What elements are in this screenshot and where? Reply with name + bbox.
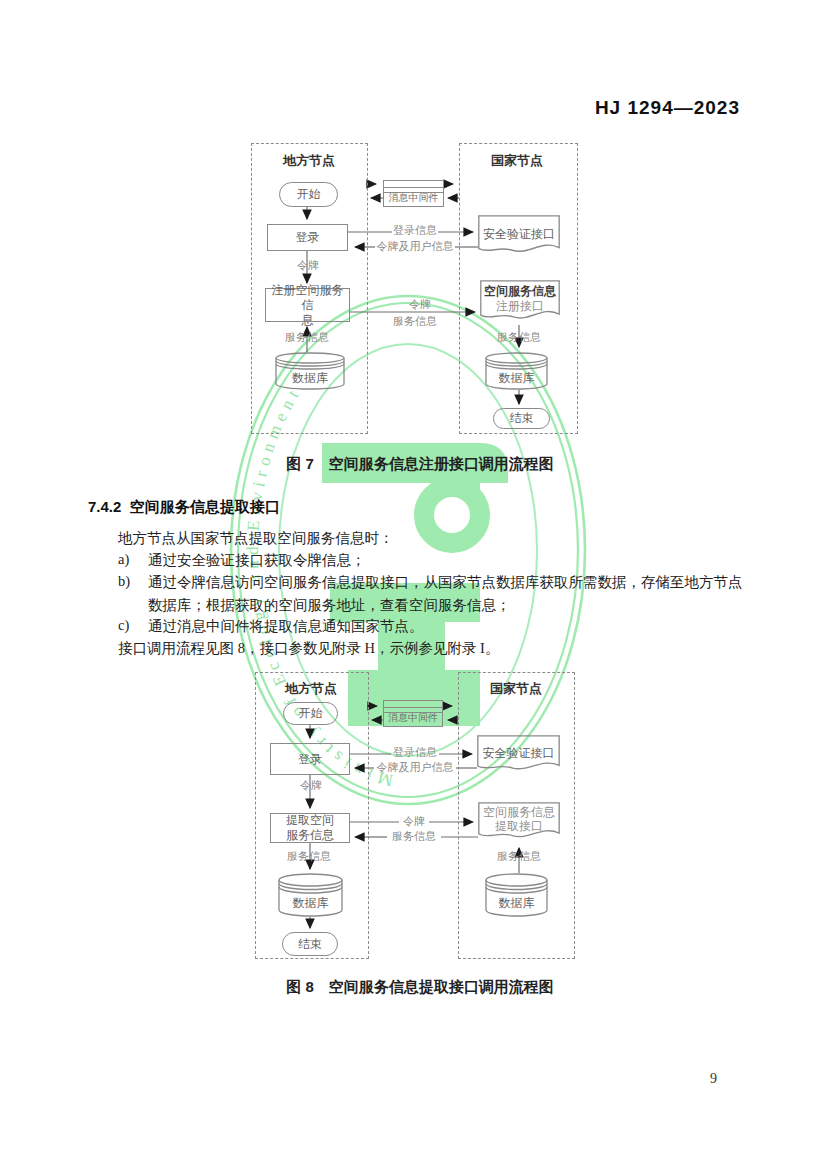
figure7-register-box: 注册空间服务信 息 (265, 288, 350, 322)
standard-number: HJ 1294—2023 (595, 97, 740, 119)
figure7-label-token-user: 令牌及用户信息 (377, 239, 454, 254)
figure7-middleware-node: 消息中间件 (383, 180, 444, 207)
list-marker: a) (118, 551, 129, 568)
figure8-national-node-title: 国家节点 (473, 680, 559, 698)
figure7-middleware-label: 消息中间件 (384, 191, 443, 205)
figure7-database-left: 数据库 (275, 352, 345, 390)
middleware-strip (384, 187, 443, 188)
section-title: 空间服务信息提取接口 (130, 498, 280, 515)
list-item-a: a) 通过安全验证接口获取令牌信息； (118, 551, 366, 570)
figure7-label-service-info-mid: 服务信息 (393, 314, 437, 329)
section-heading: 7.4.2 空间服务信息提取接口 (88, 498, 280, 517)
figure8-label-token-user: 令牌及用户信息 (377, 760, 454, 775)
figure8-extract-interface-line2: 提取接口 (478, 818, 560, 835)
figure8-login-node: 登录 (270, 743, 350, 775)
list-text-line1: 通过令牌信息访问空间服务信息提取接口，从国家节点数据库获取所需数据，存储至地方节… (148, 573, 743, 592)
figure8-label-token-mid: 令牌 (403, 814, 425, 829)
figure8-label-service-info-mid: 服务信息 (392, 829, 436, 844)
figure7-local-node-title: 地方节点 (266, 152, 352, 170)
figure8-local-node-title: 地方节点 (268, 680, 354, 698)
list-marker: c) (118, 617, 129, 634)
figure8-flowchart: 地方节点 国家节点 开始 消息中间件 登录 安全验证接口 提取空间 服务信息 (255, 672, 577, 962)
page-number: 9 (710, 1071, 717, 1087)
list-text-line2: 数据库；根据获取的空间服务地址，查看空间服务信息； (148, 596, 743, 615)
section-intro: 地方节点从国家节点提取空间服务信息时： (118, 529, 394, 548)
figure7-label-service-info-left: 服务信息 (285, 330, 329, 345)
figure7-national-node-title: 国家节点 (474, 152, 560, 170)
section-outro: 接口调用流程见图 8，接口参数见附录 H，示例参见附录 I。 (118, 639, 499, 658)
figure7-auth-interface-label: 安全验证接口 (478, 226, 560, 243)
document-page: Ministry of Ecology and Environment HJ 1… (0, 0, 826, 1169)
figure7-database-right: 数据库 (485, 352, 548, 390)
list-text: 通过消息中间件将提取信息通知国家节点。 (148, 617, 424, 636)
figure8-middleware-label: 消息中间件 (384, 711, 442, 725)
figure8-label-token-down: 令牌 (300, 778, 322, 793)
figure8-end-node: 结束 (282, 932, 338, 956)
figure8-middleware-node: 消息中间件 (383, 700, 443, 727)
figure8-auth-interface-node: 安全验证接口 (477, 735, 560, 775)
figure8-database-right-label: 数据库 (485, 895, 548, 912)
figure7-flowchart: 地方节点 国家节点 开始 消息中间件 登录 安全验证接口 注册空间服务信 息 (248, 143, 580, 435)
figure8-auth-interface-label: 安全验证接口 (477, 745, 560, 762)
list-text: 通过安全验证接口获取令牌信息； (148, 551, 366, 570)
figure7-database-right-label: 数据库 (485, 370, 548, 387)
figure8-extract-box: 提取空间 服务信息 (270, 813, 350, 843)
figure7-label-token-mid: 令牌 (409, 297, 431, 312)
figure8-extract-interface-node: 空间服务信息 提取接口 (478, 802, 560, 843)
figure8-database-left-label: 数据库 (278, 895, 343, 912)
figure7-label-login-info: 登录信息 (393, 223, 437, 238)
figure8-database-left: 数据库 (278, 873, 343, 917)
figure7-label-service-info-right: 服务信息 (497, 330, 541, 345)
figure8-database-right: 数据库 (485, 873, 548, 917)
figure7-login-node: 登录 (267, 224, 348, 251)
figure7-register-interface-node: 空间服务信息 注册接口 (480, 280, 560, 325)
figure7-register-interface-line2: 注册接口 (480, 298, 560, 315)
figure7-database-left-label: 数据库 (275, 370, 345, 387)
figure8-caption: 图 8 空间服务信息提取接口调用流程图 (0, 978, 826, 997)
figure8-label-service-info-right: 服务信息 (497, 849, 541, 864)
section-number: 7.4.2 (88, 498, 121, 515)
figure7-caption: 图 7 空间服务信息注册接口调用流程图 (0, 455, 826, 474)
figure8-start-node: 开始 (283, 702, 338, 725)
list-marker: b) (118, 573, 130, 590)
list-item-c: c) 通过消息中间件将提取信息通知国家节点。 (118, 617, 424, 636)
figure7-end-node: 结束 (493, 408, 550, 429)
middleware-strip (384, 707, 442, 708)
figure7-label-token-down: 令牌 (297, 258, 319, 273)
figure7-auth-interface-node: 安全验证接口 (478, 215, 560, 258)
figure7-start-node: 开始 (279, 182, 338, 207)
list-item-b: b) 通过令牌信息访问空间服务信息提取接口，从国家节点数据库获取所需数据，存储至… (118, 573, 743, 615)
figure8-label-login-info: 登录信息 (393, 745, 437, 760)
figure8-label-service-info-left: 服务信息 (287, 849, 331, 864)
